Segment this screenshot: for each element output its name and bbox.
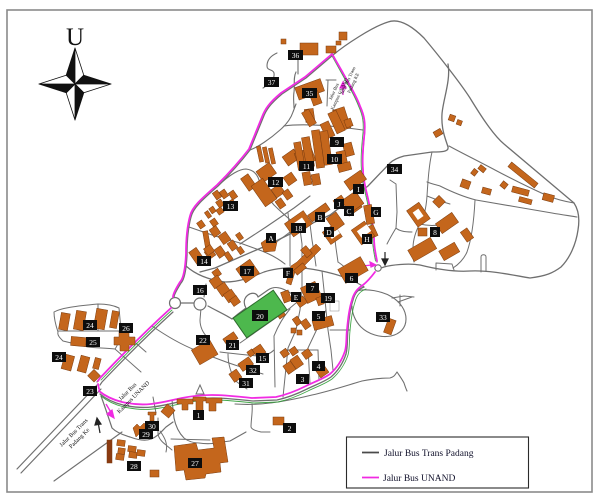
svg-text:10: 10: [331, 155, 339, 164]
svg-text:24: 24: [86, 321, 94, 330]
svg-text:21: 21: [229, 341, 237, 350]
svg-text:16: 16: [196, 286, 204, 295]
svg-text:25: 25: [89, 338, 97, 347]
svg-text:2: 2: [288, 424, 292, 433]
svg-text:B: B: [317, 213, 322, 222]
svg-text:U: U: [66, 24, 84, 51]
svg-text:22: 22: [199, 336, 207, 345]
svg-text:31: 31: [242, 379, 250, 388]
svg-text:28: 28: [130, 462, 138, 471]
svg-text:7: 7: [311, 284, 315, 293]
svg-text:5: 5: [317, 312, 321, 321]
svg-text:15: 15: [259, 354, 267, 363]
svg-text:27: 27: [191, 459, 199, 468]
svg-text:E: E: [294, 293, 299, 302]
svg-text:1: 1: [197, 411, 201, 420]
svg-text:8: 8: [433, 228, 437, 237]
svg-text:3: 3: [301, 375, 305, 384]
svg-text:35: 35: [306, 89, 314, 98]
svg-text:F: F: [286, 269, 290, 278]
svg-text:26: 26: [122, 324, 130, 333]
svg-text:11: 11: [303, 162, 310, 171]
svg-text:18: 18: [295, 224, 303, 233]
svg-text:D: D: [326, 228, 332, 237]
svg-text:H: H: [364, 235, 370, 244]
svg-text:19: 19: [324, 294, 332, 303]
svg-text:17: 17: [243, 267, 251, 276]
svg-text:23: 23: [86, 387, 94, 396]
svg-text:A: A: [268, 234, 274, 243]
svg-text:34: 34: [391, 165, 399, 174]
svg-text:6: 6: [350, 274, 354, 283]
svg-text:13: 13: [227, 202, 235, 211]
svg-text:Jalur Bus Trans Padang: Jalur Bus Trans Padang: [384, 449, 474, 459]
svg-text:14: 14: [200, 257, 208, 266]
svg-text:32: 32: [249, 366, 257, 375]
svg-text:37: 37: [268, 78, 276, 87]
svg-text:4: 4: [317, 362, 321, 371]
svg-text:24: 24: [55, 353, 63, 362]
svg-text:12: 12: [272, 178, 280, 187]
svg-text:Jalur Bus UNAND: Jalur Bus UNAND: [383, 474, 455, 484]
svg-text:C: C: [346, 207, 351, 216]
svg-text:33: 33: [379, 313, 387, 322]
svg-text:9: 9: [335, 138, 339, 147]
svg-text:29: 29: [142, 430, 150, 439]
svg-text:J: J: [338, 200, 341, 209]
svg-text:20: 20: [256, 312, 264, 321]
svg-text:G: G: [373, 208, 379, 217]
svg-text:36: 36: [292, 51, 300, 60]
